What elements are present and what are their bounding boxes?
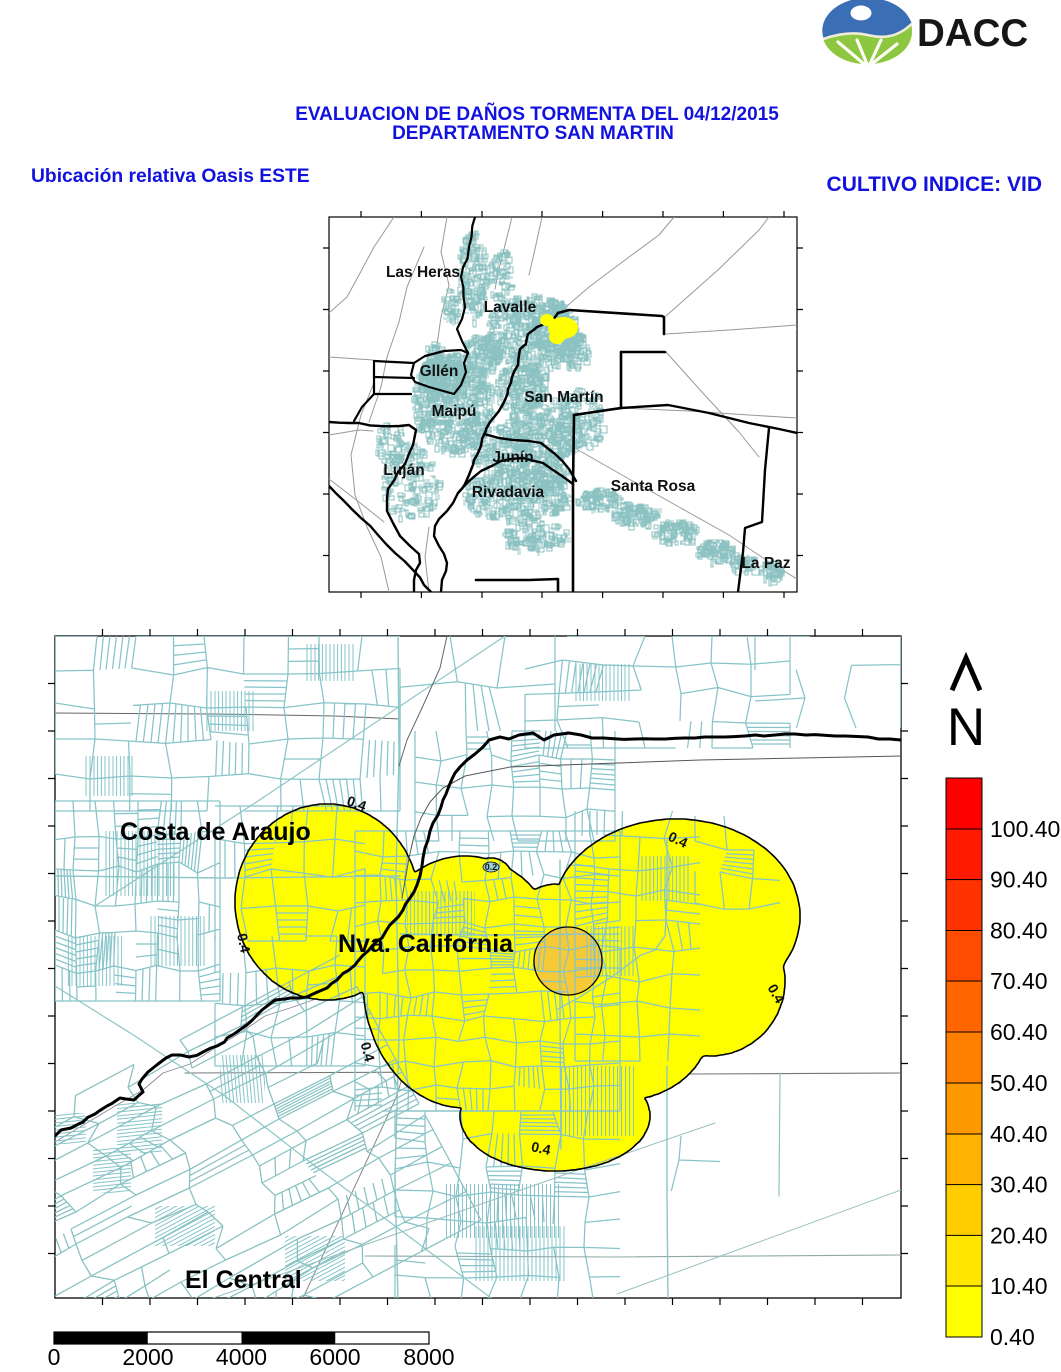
svg-text:4000: 4000 bbox=[216, 1344, 267, 1370]
svg-text:10.40: 10.40 bbox=[990, 1273, 1048, 1299]
svg-text:0.2: 0.2 bbox=[485, 862, 498, 872]
svg-text:Lavalle: Lavalle bbox=[484, 299, 537, 316]
svg-text:40.40: 40.40 bbox=[990, 1121, 1048, 1147]
svg-text:30.40: 30.40 bbox=[990, 1172, 1048, 1198]
svg-text:60.40: 60.40 bbox=[990, 1019, 1048, 1045]
svg-text:El Central: El Central bbox=[185, 1266, 302, 1294]
svg-text:20.40: 20.40 bbox=[990, 1222, 1048, 1248]
svg-text:0: 0 bbox=[48, 1344, 61, 1370]
svg-text:Las Heras: Las Heras bbox=[386, 264, 460, 281]
svg-text:Santa Rosa: Santa Rosa bbox=[611, 478, 696, 495]
svg-text:80.40: 80.40 bbox=[990, 918, 1048, 944]
svg-text:8000: 8000 bbox=[403, 1344, 454, 1370]
svg-text:Costa de Araujo: Costa de Araujo bbox=[120, 818, 311, 846]
svg-text:70.40: 70.40 bbox=[990, 968, 1048, 994]
svg-text:DEPARTAMENTO SAN MARTIN: DEPARTAMENTO SAN MARTIN bbox=[392, 123, 674, 144]
svg-text:N: N bbox=[947, 698, 985, 757]
svg-text:Junín: Junín bbox=[492, 449, 533, 466]
svg-text:6000: 6000 bbox=[309, 1344, 360, 1370]
svg-text:0.40: 0.40 bbox=[990, 1324, 1035, 1350]
svg-text:100.40: 100.40 bbox=[990, 816, 1060, 842]
svg-text:Gllén: Gllén bbox=[420, 363, 459, 380]
svg-text:Maipú: Maipú bbox=[432, 403, 477, 420]
svg-text:2000: 2000 bbox=[122, 1344, 173, 1370]
svg-text:La Paz: La Paz bbox=[741, 555, 790, 572]
svg-text:50.40: 50.40 bbox=[990, 1070, 1048, 1096]
svg-text:San Martín: San Martín bbox=[524, 389, 603, 406]
svg-text:Luján: Luján bbox=[383, 462, 424, 479]
svg-text:CULTIVO INDICE: VID: CULTIVO INDICE: VID bbox=[827, 173, 1042, 196]
svg-text:EVALUACION DE DAÑOS TORMENTA D: EVALUACION DE DAÑOS TORMENTA DEL 04/12/2… bbox=[295, 103, 779, 125]
svg-text:Nva. California: Nva. California bbox=[338, 930, 514, 958]
svg-text:90.40: 90.40 bbox=[990, 867, 1048, 893]
svg-text:Ubicación relativa Oasis ESTE: Ubicación relativa Oasis ESTE bbox=[31, 166, 310, 187]
svg-text:DACC: DACC bbox=[917, 12, 1028, 55]
svg-text:Rivadavia: Rivadavia bbox=[472, 484, 545, 501]
